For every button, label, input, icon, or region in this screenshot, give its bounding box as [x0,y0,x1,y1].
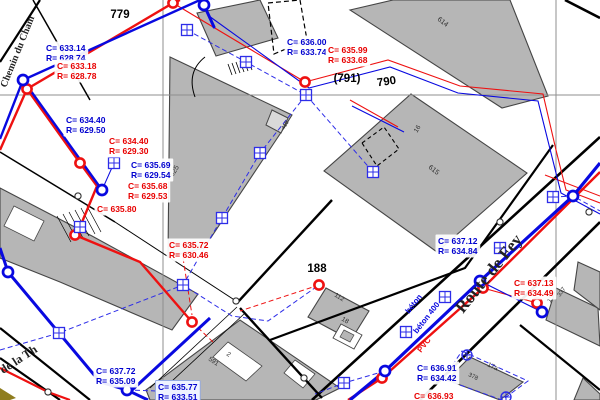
svg-text:R= 628.78: R= 628.78 [57,71,97,81]
boundary-stone [497,219,503,225]
water-valve-grid-symbol[interactable] [241,57,252,68]
boundary-stone [586,209,592,215]
parcel-number-label: 790 [376,75,397,90]
svg-text:C= 633.18: C= 633.18 [57,61,97,71]
water-valve-grid-symbol[interactable] [339,378,350,389]
sewer-manhole-node[interactable] [300,77,309,86]
svg-text:C= 636.00: C= 636.00 [287,37,327,47]
elevation-annotation[interactable]: C= 635.99R= 633.68 [326,44,371,67]
water-valve-grid-symbol[interactable] [75,222,86,233]
wall-top-right [565,0,600,18]
water-valve-grid-symbol[interactable] [301,90,312,101]
svg-text:C= 635.99: C= 635.99 [328,45,368,55]
water-valve-grid-symbol[interactable] [368,167,379,178]
boundary-stone [75,193,81,199]
map-viewport[interactable]: 6146151662541511218591217a37815337Chemin… [0,0,600,400]
water-hydrant-node[interactable] [537,307,547,317]
svg-text:C= 636.91: C= 636.91 [417,363,457,373]
svg-text:R= 629.50: R= 629.50 [66,125,106,135]
water-valve-grid-symbol[interactable] [182,25,193,36]
water-hydrant-node[interactable] [3,267,13,277]
elevation-annotation[interactable]: C= 636.00R= 633.74 [285,36,330,59]
boundary-stone [301,375,307,381]
svg-text:C= 635.69: C= 635.69 [131,160,171,170]
elevation-annotation[interactable]: C= 635.77R= 633.51 [156,381,201,400]
svg-text:R= 629.54: R= 629.54 [131,170,171,180]
water-valve-grid-symbol[interactable] [54,328,65,339]
water-hydrant-node[interactable] [97,185,107,195]
svg-text:C= 635.68: C= 635.68 [128,181,168,191]
water-hydrant-node[interactable] [18,75,28,85]
water-hydrant-node[interactable] [199,0,209,10]
water-valve-grid-symbol[interactable] [440,292,451,303]
water-hydrant-node[interactable] [568,191,578,201]
svg-text:C= 637.13: C= 637.13 [514,278,554,288]
svg-text:C= 636.93: C= 636.93 [414,391,454,400]
building-615 [324,94,527,252]
sewer-manhole-node[interactable] [314,280,323,289]
svg-text:C= 633.14: C= 633.14 [46,43,86,53]
sewer-manhole-node[interactable] [168,0,177,8]
svg-text:C= 635.72: C= 635.72 [169,240,209,250]
building-corner-se [574,378,600,400]
svg-text:C= 637.72: C= 637.72 [96,366,136,376]
water-valve-grid-symbol[interactable] [255,148,266,159]
elevation-annotation[interactable]: C= 635.72R= 630.46 [167,239,212,262]
svg-text:C= 634.40: C= 634.40 [109,136,149,146]
elevation-annotation[interactable]: C= 637.12R= 634.84 [436,235,481,258]
elevation-annotation[interactable]: C= 633.18R= 628.78 [55,60,100,83]
building-625 [168,57,292,257]
elevation-annotation[interactable]: C= 637.13R= 634.49 [512,277,557,300]
elevation-annotation[interactable]: C= 636.93 [412,390,457,400]
sewer-manhole-node[interactable] [187,317,196,326]
svg-text:R= 634.49: R= 634.49 [514,288,554,298]
water-valve-grid-symbol[interactable] [109,158,120,169]
boundary-stone [233,298,239,304]
water-hydrant-node[interactable] [380,366,390,376]
svg-text:C= 635.80: C= 635.80 [97,204,137,214]
water-valve-grid-symbol[interactable] [401,327,412,338]
map-canvas[interactable]: 6146151662541511218591217a37815337Chemin… [0,0,600,400]
water-valve-grid-symbol[interactable] [548,192,559,203]
svg-text:R= 633.68: R= 633.68 [328,55,368,65]
elevation-annotation[interactable]: C= 636.91R= 634.42 [415,362,460,385]
svg-text:C= 637.12: C= 637.12 [438,236,478,246]
svg-text:C= 635.77: C= 635.77 [158,382,198,392]
terrain-patch [0,388,16,400]
elevation-annotation[interactable]: C= 635.69R= 629.54 [129,159,174,182]
elevation-annotation[interactable]: C= 637.72R= 635.09 [94,365,139,388]
parcel-number-label: 779 [110,9,129,21]
svg-text:C= 634.40: C= 634.40 [66,115,106,125]
svg-text:R= 630.46: R= 630.46 [169,250,209,260]
svg-text:R= 635.09: R= 635.09 [96,376,136,386]
boundary-stone [45,389,51,395]
svg-text:R= 629.30: R= 629.30 [109,146,149,156]
parcel-number-label: (791) [334,73,361,85]
water-valve-grid-symbol[interactable] [178,280,189,291]
elevation-annotation[interactable]: C= 634.40R= 629.30 [107,135,152,158]
svg-text:R= 633.51: R= 633.51 [158,392,198,400]
elevation-annotation[interactable]: C= 635.80 [95,203,140,216]
svg-text:R= 634.42: R= 634.42 [417,373,457,383]
svg-text:R= 633.74: R= 633.74 [287,47,327,57]
water-valve-grid-symbol[interactable] [217,213,228,224]
svg-text:R= 634.84: R= 634.84 [438,246,478,256]
parcel-number-label: 188 [307,263,327,275]
svg-text:R= 629.53: R= 629.53 [128,191,168,201]
sewer-service-dashed-a [240,285,319,311]
survey-point-symbol[interactable] [462,350,472,360]
elevation-annotation[interactable]: C= 635.68R= 629.53 [126,180,171,203]
pipe-material-label: béton [403,292,424,315]
sewer-manhole-node[interactable] [75,158,84,167]
elevation-annotation[interactable]: C= 634.40R= 629.50 [64,114,109,137]
